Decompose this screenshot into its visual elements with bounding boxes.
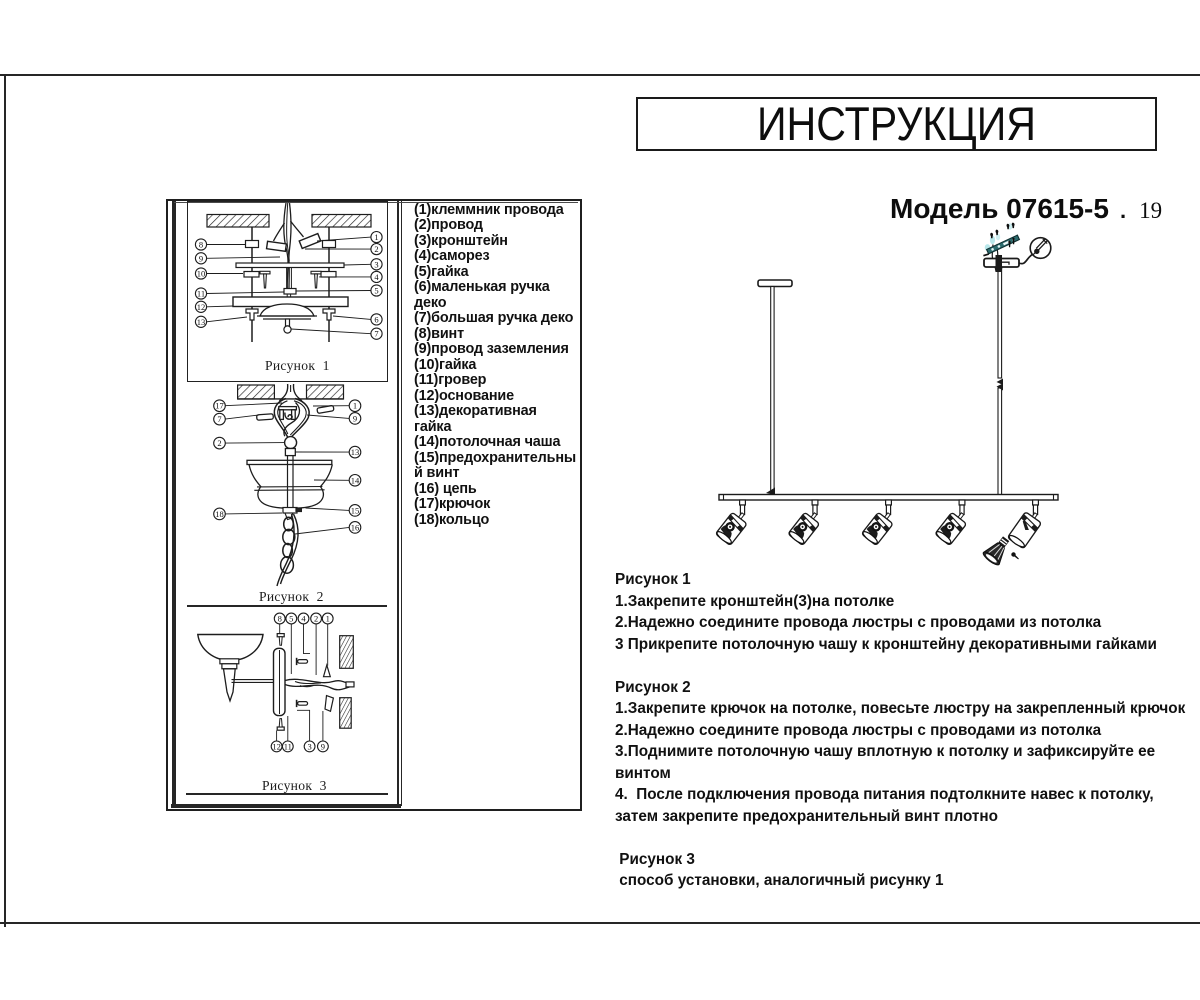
svg-text:2: 2 — [374, 244, 378, 254]
svg-text:10: 10 — [197, 269, 206, 279]
svg-text:11: 11 — [197, 289, 205, 299]
svg-text:5: 5 — [289, 614, 293, 624]
svg-text:11: 11 — [284, 741, 292, 751]
svg-text:2: 2 — [217, 438, 221, 448]
svg-text:12: 12 — [272, 741, 281, 751]
svg-text:14: 14 — [351, 475, 360, 485]
svg-text:15: 15 — [351, 505, 360, 515]
svg-text:9: 9 — [353, 413, 357, 423]
svg-text:7: 7 — [217, 414, 221, 424]
svg-text:1: 1 — [374, 232, 378, 242]
svg-text:16: 16 — [351, 522, 360, 532]
svg-text:3: 3 — [307, 741, 311, 751]
svg-text:9: 9 — [199, 253, 203, 263]
svg-text:1: 1 — [353, 401, 357, 411]
svg-text:17: 17 — [215, 401, 224, 411]
svg-text:8: 8 — [199, 240, 203, 250]
svg-text:3: 3 — [374, 259, 378, 269]
svg-text:13: 13 — [351, 447, 360, 457]
svg-text:8: 8 — [278, 614, 282, 624]
svg-text:13: 13 — [197, 317, 206, 327]
svg-text:1: 1 — [326, 614, 330, 624]
svg-text:9: 9 — [321, 741, 325, 751]
svg-text:12: 12 — [197, 302, 206, 312]
svg-text:18: 18 — [215, 509, 224, 519]
svg-text:7: 7 — [374, 329, 378, 339]
svg-text:5: 5 — [374, 286, 378, 296]
svg-text:2: 2 — [314, 614, 318, 624]
svg-text:6: 6 — [374, 314, 378, 324]
